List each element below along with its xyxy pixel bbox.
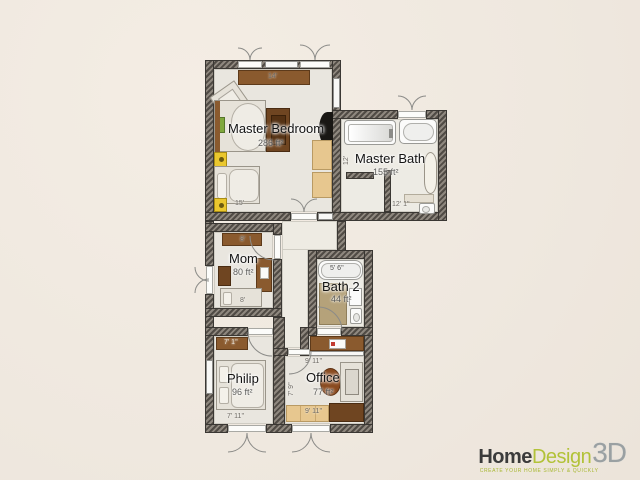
room-area-philip: 96 ft²: [232, 387, 253, 397]
dim-master-bath-left: 12': [343, 156, 350, 165]
door[interactable]: [228, 433, 266, 452]
dim-philip-top: 7' 1'': [224, 339, 238, 346]
room-label-mom: Mom: [229, 251, 258, 266]
door[interactable]: [318, 307, 342, 331]
door[interactable]: [195, 267, 209, 293]
homedesign3d-logo: HomeDesign3D CREATE YOUR HOME SIMPLY & Q…: [478, 439, 626, 474]
room-label-master-bedroom: Master Bedroom: [228, 121, 324, 136]
logo-word-design: Design: [532, 447, 591, 467]
room-area-master-bath: 155 ft²: [373, 167, 399, 177]
room-label-office: Office: [306, 370, 340, 385]
dim-office-bottom: 9' 11'': [305, 408, 322, 415]
dim-office-left: 7' 9'': [288, 382, 295, 396]
floorplan-canvas: Master Bedroom 286 ft² Master Bath 155 f…: [0, 0, 640, 480]
door[interactable]: [248, 332, 272, 356]
dim-master-bath-bottom: 12' 1'': [392, 201, 410, 208]
door[interactable]: [292, 433, 330, 452]
logo-word-home: Home: [478, 447, 532, 467]
door[interactable]: [398, 96, 426, 110]
room-label-bath2: Bath 2: [322, 279, 360, 294]
dim-master-bedroom-bottom: 15': [235, 200, 244, 207]
logo-word-3d: 3D: [592, 439, 626, 467]
room-area-mom: 80 ft²: [233, 267, 254, 277]
dim-mom-top: 8': [240, 236, 245, 243]
door[interactable]: [291, 199, 317, 212]
room-area-office: 77 ft²: [313, 387, 334, 397]
dim-master-bedroom-top: 14': [268, 73, 277, 80]
dim-office-top: 9' 11'': [305, 358, 322, 365]
door[interactable]: [238, 48, 262, 60]
room-label-master-bath: Master Bath: [355, 151, 425, 166]
room-area-bath2: 44 ft²: [331, 294, 352, 304]
room-label-philip: Philip: [227, 371, 259, 386]
dim-mom-bottom: 8': [240, 297, 245, 304]
logo-tagline: CREATE YOUR HOME SIMPLY & QUICKLY: [478, 468, 600, 474]
door[interactable]: [300, 45, 330, 60]
dim-philip-bottom: 7' 11'': [227, 413, 244, 420]
room-area-master-bedroom: 286 ft²: [258, 138, 284, 148]
dim-bath2-tub: 5' 6'': [330, 265, 344, 272]
